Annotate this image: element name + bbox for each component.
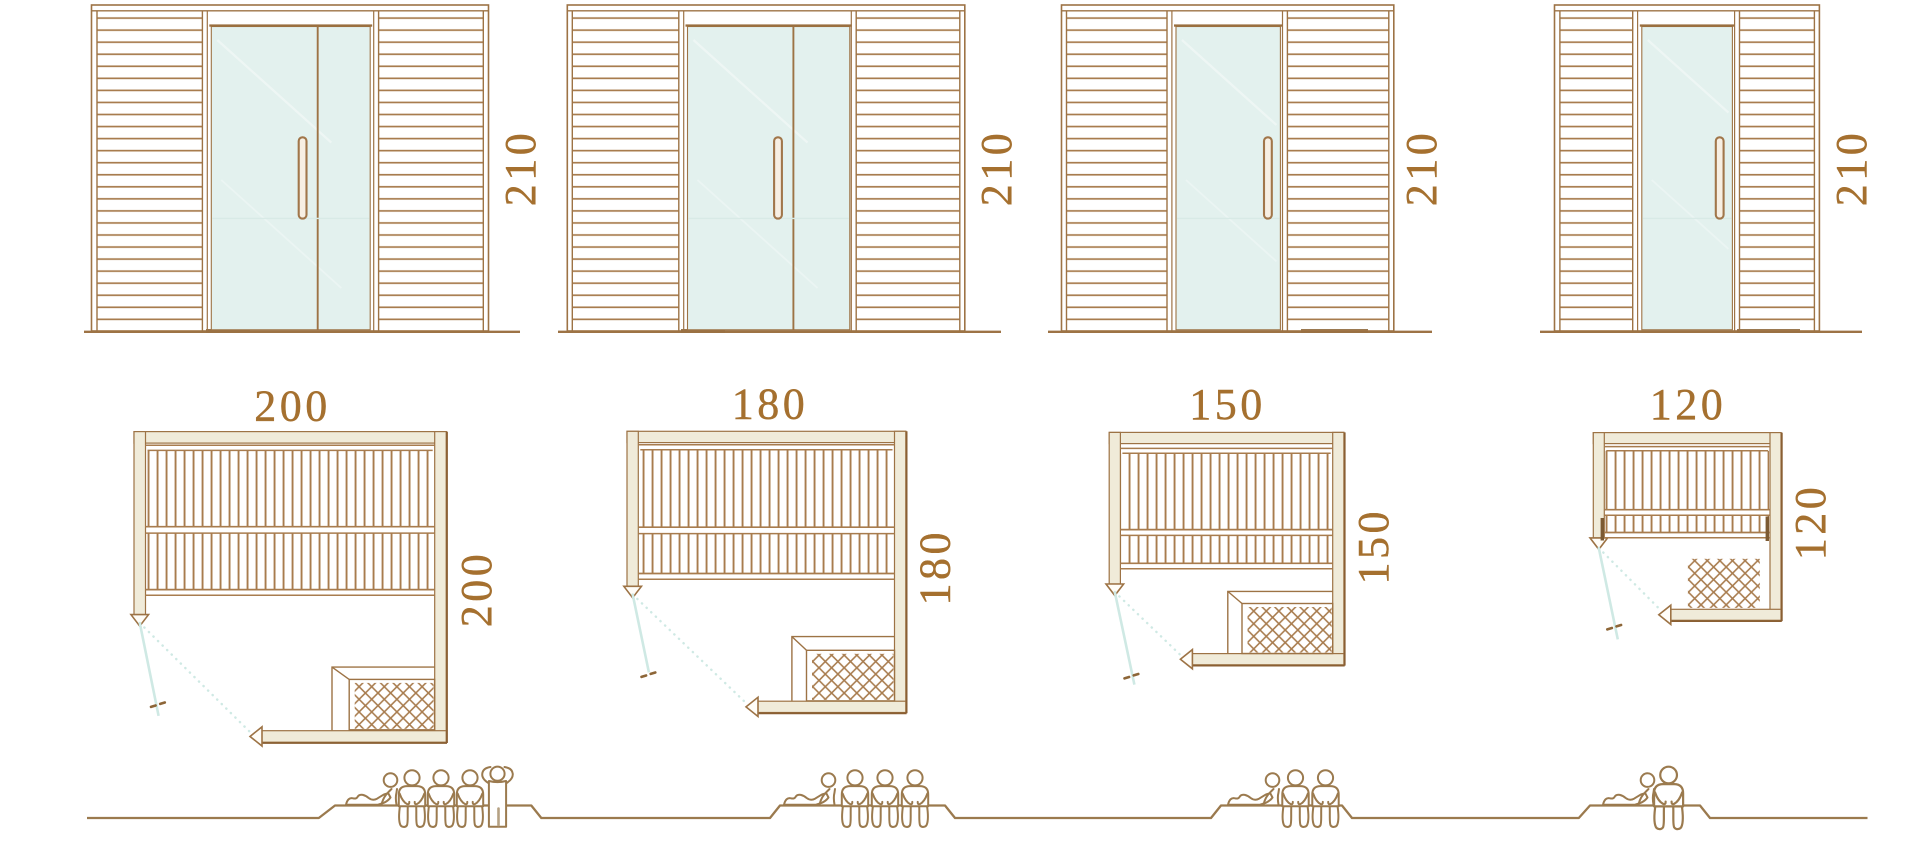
svg-text:180: 180 [732,380,809,429]
svg-text:200: 200 [254,382,331,431]
svg-text:120: 120 [1786,484,1835,561]
svg-text:150: 150 [1349,508,1398,585]
svg-text:150: 150 [1189,380,1266,429]
svg-text:210: 210 [972,130,1021,207]
svg-text:210: 210 [496,130,545,207]
svg-text:210: 210 [1397,130,1446,207]
svg-text:120: 120 [1650,380,1727,429]
svg-text:210: 210 [1827,130,1876,207]
svg-text:200: 200 [452,551,501,628]
svg-text:180: 180 [910,529,959,606]
